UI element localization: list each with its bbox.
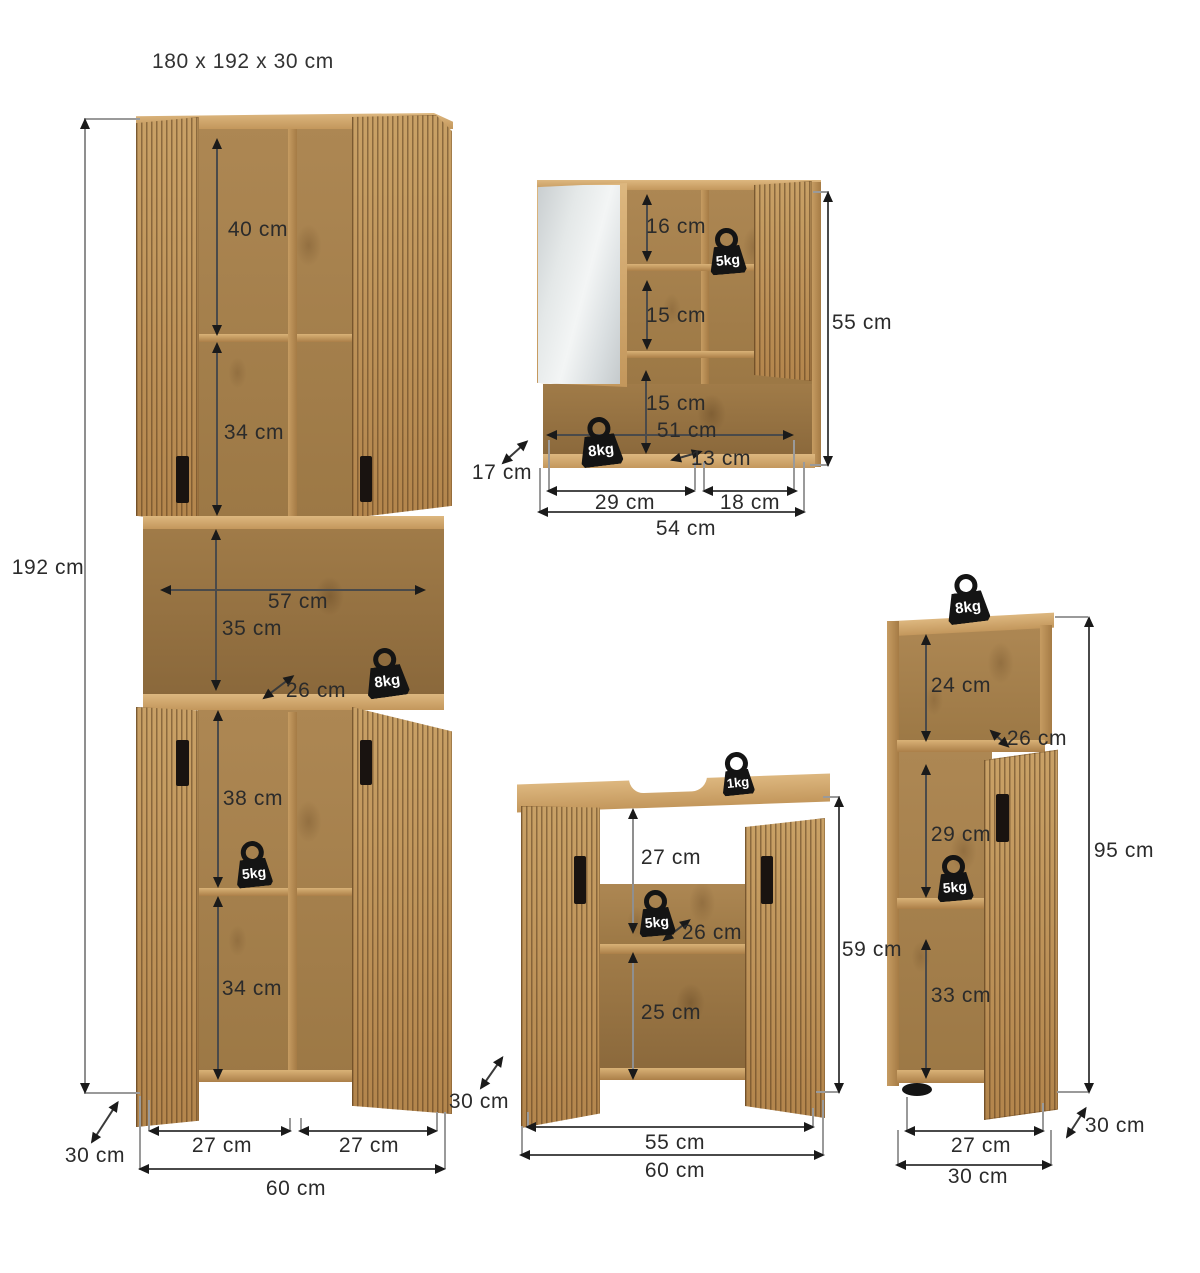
dim-line-27 [906, 1130, 1043, 1132]
extension-line [139, 1096, 141, 1170]
dim-line-60 [140, 1168, 444, 1170]
side-depth-label: 30 cm [1085, 1114, 1145, 1138]
weight-8kg-icon: 8kg [576, 415, 624, 469]
sink-cabinet-right-door [745, 818, 825, 1118]
tall-niche-width-label: 57 cm [268, 590, 328, 614]
tall-shelf34-upper-label: 34 cm [224, 421, 284, 445]
door-handle [176, 740, 189, 786]
dim-line-24 [925, 636, 927, 740]
extension-line [84, 118, 140, 120]
mirror-right-inner-label: 13 cm [691, 447, 751, 471]
dim-line-25 [632, 954, 634, 1078]
dim-line-depth-30-left [91, 1102, 118, 1143]
set-dimensions-title: 180 x 192 x 30 cm [152, 50, 334, 74]
side-shelf24-label: 24 cm [931, 674, 991, 698]
weight-label: 5kg [936, 871, 974, 902]
tall-door-right-width-label: 27 cm [339, 1134, 399, 1158]
extension-line [793, 440, 795, 490]
weight-label: 5kg [235, 857, 274, 889]
mirror-left-section-label: 29 cm [595, 491, 655, 515]
side-depth-inner-label: 26 cm [1007, 727, 1067, 751]
dim-line-34-lower [217, 898, 219, 1078]
weight-8kg-icon: 8kg [362, 645, 410, 699]
mirror-cabinet-right-door [754, 181, 812, 381]
extension-line [822, 1100, 824, 1154]
mirror-shelf15-mid-label: 15 cm [646, 304, 706, 328]
sink-width-label: 60 cm [645, 1159, 705, 1183]
furniture-dimension-diagram: 180 x 192 x 30 cm [0, 0, 1200, 1273]
sink-depth-label: 26 cm [682, 921, 742, 945]
tall-shelf34-lower-label: 34 cm [222, 977, 282, 1001]
tall-height-label: 192 cm [12, 556, 84, 580]
dim-line-height-59 [838, 798, 840, 1092]
mirror-depth-label: 17 cm [472, 461, 532, 485]
weight-1kg-icon: 1kg [719, 750, 755, 796]
door-handle [996, 794, 1009, 842]
mirror-width-label: 54 cm [656, 517, 716, 541]
mirror [538, 185, 620, 384]
mirror-height-label: 55 cm [832, 311, 892, 335]
extension-line [1050, 1130, 1052, 1164]
weight-8kg-icon: 8kg [943, 572, 991, 626]
dim-line-height-55 [827, 193, 829, 465]
cabinet-foot [902, 1083, 932, 1096]
tall-door-left-width-label: 27 cm [192, 1134, 252, 1158]
dim-line-40 [216, 140, 218, 334]
dim-line-34-upper [216, 344, 218, 514]
weight-5kg-icon: 5kg [233, 839, 274, 889]
dim-line-55 [527, 1126, 813, 1128]
door-handle [574, 856, 586, 904]
mirror-shelf16-label: 16 cm [646, 215, 706, 239]
tall-cabinet-niche-top-board [143, 516, 444, 529]
dim-line-27 [632, 810, 634, 932]
sink-cabinet-shelf [600, 944, 746, 954]
extension-line [897, 1130, 899, 1164]
tall-width-label: 60 cm [266, 1177, 326, 1201]
extension-line [84, 1092, 140, 1094]
dim-line-27-right [300, 1130, 436, 1132]
mirror-shelf15-low-label: 15 cm [646, 392, 706, 416]
sink-cabinet-bottom-board [600, 1068, 746, 1080]
dim-line-depth-30-right [480, 1057, 503, 1088]
dim-line-depth-30 [1066, 1108, 1086, 1138]
door-handle [360, 740, 372, 785]
sink-upper-height-label: 27 cm [641, 846, 701, 870]
side-shelf33-label: 33 cm [931, 984, 991, 1008]
tall-depth-right-label: 30 cm [449, 1090, 509, 1114]
dim-line-27-left [150, 1130, 290, 1132]
weight-label: 1kg [721, 768, 755, 796]
side-cabinet-lower-interior [897, 752, 992, 1082]
mirror-door [537, 183, 627, 387]
weight-5kg-icon: 5kg [707, 227, 747, 276]
extension-line [444, 1112, 446, 1169]
sink-pipe-notch [629, 776, 707, 794]
dim-line-height-192 [84, 120, 86, 1092]
mirror-right-section-label: 18 cm [720, 491, 780, 515]
tall-shelf38-label: 38 cm [223, 787, 283, 811]
tall-depth-left-label: 30 cm [65, 1144, 125, 1168]
weight-label: 8kg [578, 432, 623, 468]
tall-cabinet-upper-left-door [136, 117, 199, 522]
door-handle [761, 856, 773, 904]
tall-cabinet-lower-left-door [136, 707, 199, 1127]
side-height-label: 95 cm [1094, 839, 1154, 863]
weight-5kg-icon: 5kg [636, 889, 676, 938]
tall-niche-depth-label: 26 cm [286, 679, 346, 703]
dim-line-29 [925, 766, 927, 896]
dim-line-35 [215, 531, 217, 689]
tall-cabinet-lower-shelf [198, 888, 356, 896]
tall-niche-height-label: 35 cm [222, 617, 282, 641]
side-inner-width-label: 27 cm [951, 1134, 1011, 1158]
tall-cabinet-upper-divider [288, 129, 297, 524]
weight-label: 5kg [638, 906, 676, 937]
door-handle [360, 456, 372, 502]
extension-line [548, 440, 550, 490]
dim-line-38 [217, 712, 219, 886]
extension-line [803, 462, 805, 511]
side-shelf29-label: 29 cm [931, 823, 991, 847]
extension-line [539, 468, 541, 511]
mirror-cabinet-right-panel [812, 182, 821, 467]
side-width-label: 30 cm [948, 1165, 1008, 1189]
tall-cabinet-lower-divider [288, 712, 297, 1080]
weight-label: 5kg [709, 244, 747, 275]
sink-height-label: 59 cm [842, 938, 902, 962]
sink-cabinet-left-door [521, 806, 600, 1128]
sink-inner-width-label: 55 cm [645, 1131, 705, 1155]
side-cabinet-left-panel [887, 621, 899, 1086]
weight-label: 8kg [945, 589, 990, 625]
sink-lower-height-label: 25 cm [641, 1001, 701, 1025]
mirror-inner-width-label: 51 cm [657, 419, 717, 443]
weight-label: 8kg [364, 663, 410, 700]
sink-cabinet-countertop [517, 774, 830, 813]
dim-line-33 [925, 941, 927, 1077]
weight-5kg-icon: 5kg [934, 854, 974, 903]
dim-line-height-95 [1088, 618, 1090, 1092]
tall-shelf40-label: 40 cm [228, 218, 288, 242]
side-cabinet-bottom-board [897, 1070, 992, 1083]
door-handle [176, 456, 189, 503]
